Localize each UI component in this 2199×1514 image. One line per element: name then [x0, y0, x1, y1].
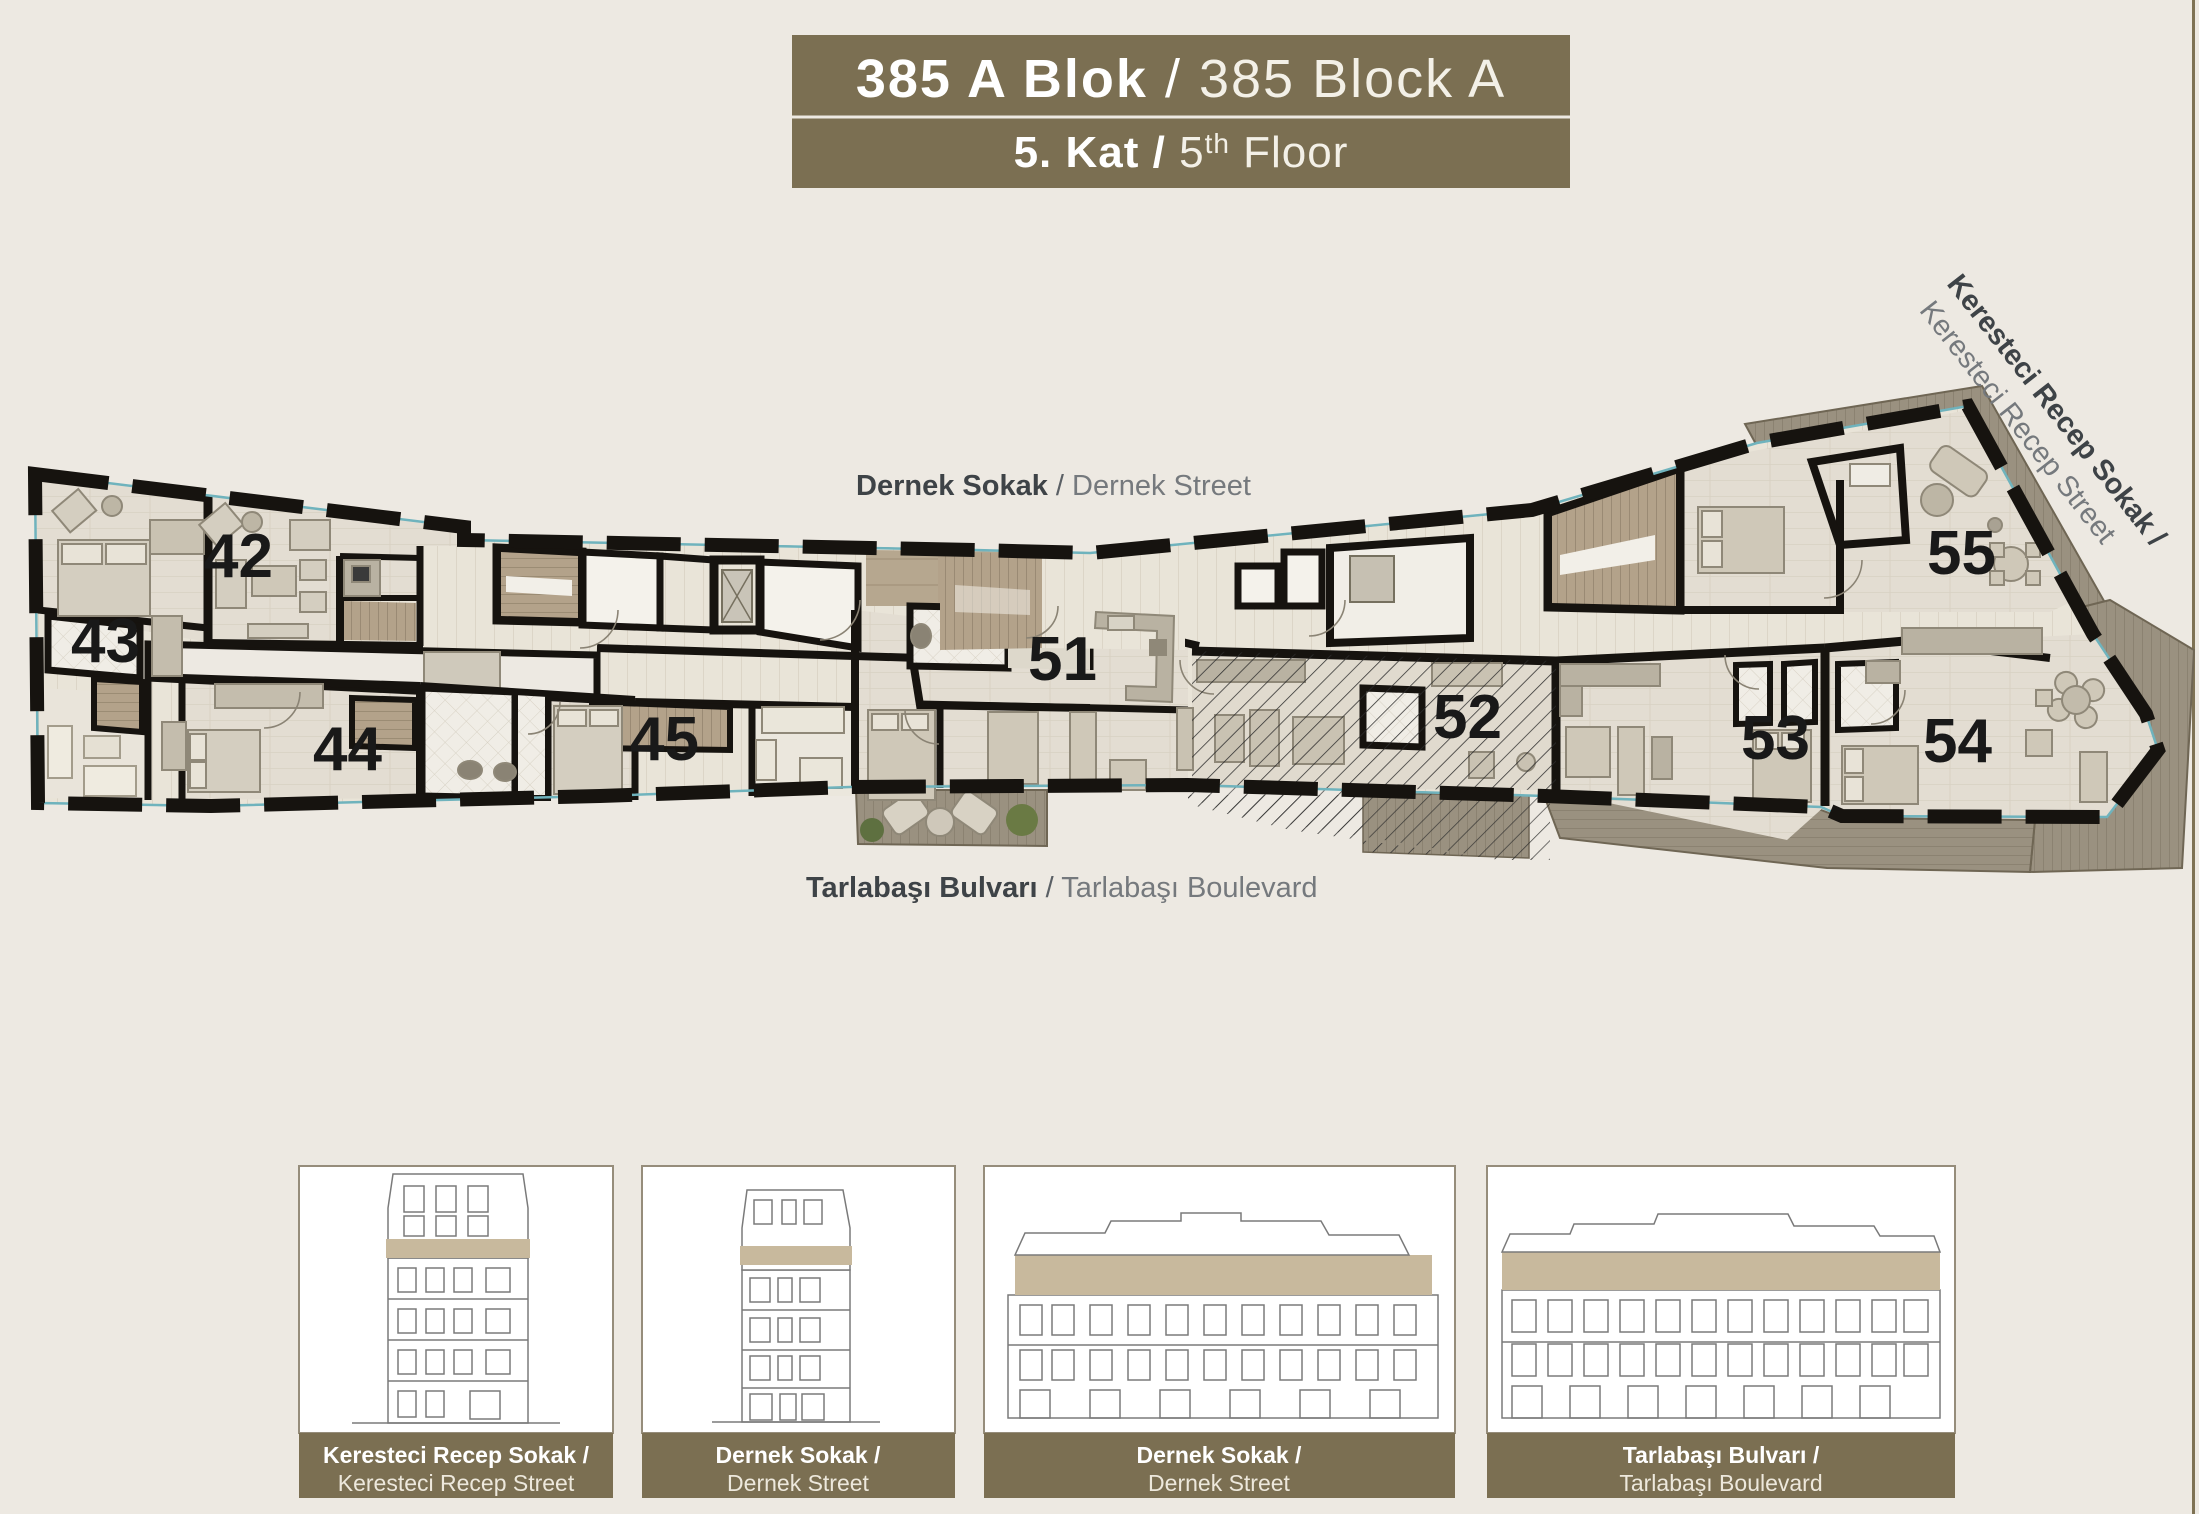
svg-text:5. Kat / 5th Floor: 5. Kat / 5th Floor	[1014, 128, 1349, 177]
svg-text:52: 52	[1433, 683, 1502, 752]
svg-text:Dernek Sokak /: Dernek Sokak /	[1137, 1442, 1303, 1468]
svg-text:54: 54	[1923, 707, 1992, 776]
svg-text:Tarlabaşı Boulevard: Tarlabaşı Boulevard	[1619, 1470, 1822, 1496]
svg-text:Tarlabaşı Bulvarı / Tarlabaşı: Tarlabaşı Bulvarı / Tarlabaşı Boulevard	[806, 872, 1318, 904]
svg-text:55: 55	[1927, 519, 1996, 588]
svg-text:Dernek Street: Dernek Street	[1148, 1470, 1291, 1496]
svg-text:Dernek Sokak / Dernek Street: Dernek Sokak / Dernek Street	[856, 470, 1251, 502]
svg-text:Tarlabaşı Bulvarı /: Tarlabaşı Bulvarı /	[1623, 1442, 1820, 1468]
svg-text:44: 44	[313, 715, 382, 784]
svg-text:Keresteci Recep Street: Keresteci Recep Street	[338, 1470, 575, 1496]
svg-text:43: 43	[71, 607, 140, 676]
svg-text:Dernek Sokak /: Dernek Sokak /	[716, 1442, 882, 1468]
svg-text:Keresteci Recep Sokak /: Keresteci Recep Sokak /	[323, 1442, 590, 1468]
svg-text:385 A Blok / 385 Block A: 385 A Blok / 385 Block A	[856, 49, 1506, 109]
svg-text:45: 45	[630, 705, 699, 774]
svg-text:51: 51	[1028, 625, 1097, 694]
svg-text:42: 42	[204, 522, 273, 591]
svg-text:53: 53	[1741, 704, 1810, 773]
svg-text:Dernek Street: Dernek Street	[727, 1470, 870, 1496]
